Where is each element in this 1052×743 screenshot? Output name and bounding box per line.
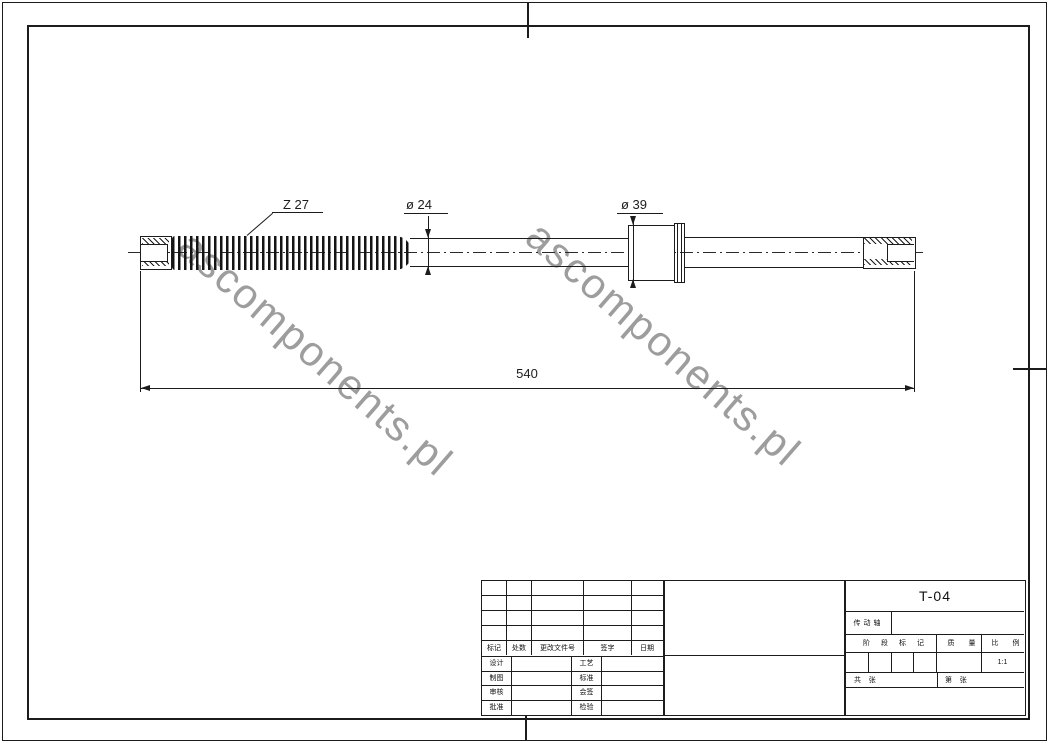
left-threaded-hole bbox=[141, 244, 168, 262]
revision-table: 标记 处数 更改文件号 签字 日期 bbox=[481, 580, 664, 657]
spline-label: Z 27 bbox=[283, 197, 309, 212]
sig-label-inspect: 检验 bbox=[572, 701, 602, 716]
sheet-number: 第 张 bbox=[937, 672, 1024, 687]
spline-section bbox=[172, 236, 412, 270]
signature-table: 设计 工艺 制图 标准 审核 会签 批准 检验 bbox=[481, 657, 664, 716]
revision-header-docno: 更改文件号 bbox=[532, 641, 584, 655]
dim39-arrow-bottom bbox=[630, 279, 636, 288]
signature-row: 批准 检验 bbox=[482, 701, 663, 716]
shaft-diameter-label: ø 24 bbox=[406, 197, 432, 212]
length-label: 540 bbox=[500, 366, 554, 381]
shaft-diameter-underline bbox=[404, 213, 448, 214]
shaft-body-right bbox=[685, 237, 863, 268]
revision-row-empty bbox=[482, 581, 663, 596]
revision-header-date: 日期 bbox=[632, 641, 662, 655]
sig-label-draft: 制图 bbox=[482, 672, 512, 686]
sig-label-standard: 标准 bbox=[572, 672, 602, 686]
sig-label-process: 工艺 bbox=[572, 657, 602, 671]
drawing-number: T-04 bbox=[846, 581, 1024, 611]
dim540-arrow-right bbox=[905, 385, 914, 391]
revision-header-row: 标记 处数 更改文件号 签字 日期 bbox=[482, 641, 663, 655]
flange-disc bbox=[674, 223, 685, 283]
sig-label-design: 设计 bbox=[482, 657, 512, 671]
stage-mark-header: 阶段标记 bbox=[846, 634, 944, 652]
sig-label-approve: 批准 bbox=[482, 701, 512, 716]
scale-value: 1:1 bbox=[981, 652, 1024, 672]
sheets-total: 共 张 bbox=[846, 672, 937, 687]
centering-mark-bottom bbox=[525, 716, 527, 740]
right-threaded-hole bbox=[887, 244, 914, 262]
title-block: T-04 传动轴 阶段标记 质量 比例 1:1 共 张 第 张 bbox=[845, 580, 1026, 716]
titleblock-middle-top-cell bbox=[664, 580, 845, 656]
dim540-arrow-left bbox=[141, 385, 150, 391]
revision-row-empty bbox=[482, 626, 663, 641]
length-dimline bbox=[141, 388, 914, 389]
revision-header-signature: 签字 bbox=[584, 641, 632, 655]
centering-mark-top bbox=[527, 2, 529, 38]
signature-row: 审核 会签 bbox=[482, 686, 663, 701]
length-extension-right bbox=[914, 271, 915, 392]
length-extension-left bbox=[140, 271, 141, 392]
shaft-body-left bbox=[410, 238, 628, 267]
dim39-arrow-top bbox=[630, 216, 636, 225]
signature-row: 制图 标准 bbox=[482, 672, 663, 687]
revision-header-mark: 标记 bbox=[482, 641, 507, 655]
titleblock-middle-bottom-cell bbox=[664, 656, 845, 716]
sig-label-countersign: 会签 bbox=[572, 686, 602, 700]
dim24-arrow-bottom bbox=[425, 266, 431, 275]
revision-row-empty bbox=[482, 596, 663, 611]
signature-row: 设计 工艺 bbox=[482, 657, 663, 672]
flange-collar bbox=[628, 225, 675, 281]
scale-header: 比例 bbox=[981, 634, 1034, 652]
revision-header-count: 处数 bbox=[507, 641, 532, 655]
revision-row-empty bbox=[482, 611, 663, 626]
drawing-sheet: ascomponents.pl ascomponents.pl Z 27 ø 2… bbox=[0, 0, 1052, 743]
spline-label-underline bbox=[272, 212, 323, 213]
flange-diameter-underline bbox=[617, 213, 663, 214]
flange-diameter-dimline bbox=[633, 216, 634, 287]
sig-label-check: 审核 bbox=[482, 686, 512, 700]
dim24-arrow-top bbox=[425, 229, 431, 238]
flange-diameter-label: ø 39 bbox=[621, 197, 647, 212]
part-name: 传动轴 bbox=[846, 611, 891, 634]
centering-mark-right bbox=[1013, 368, 1046, 370]
